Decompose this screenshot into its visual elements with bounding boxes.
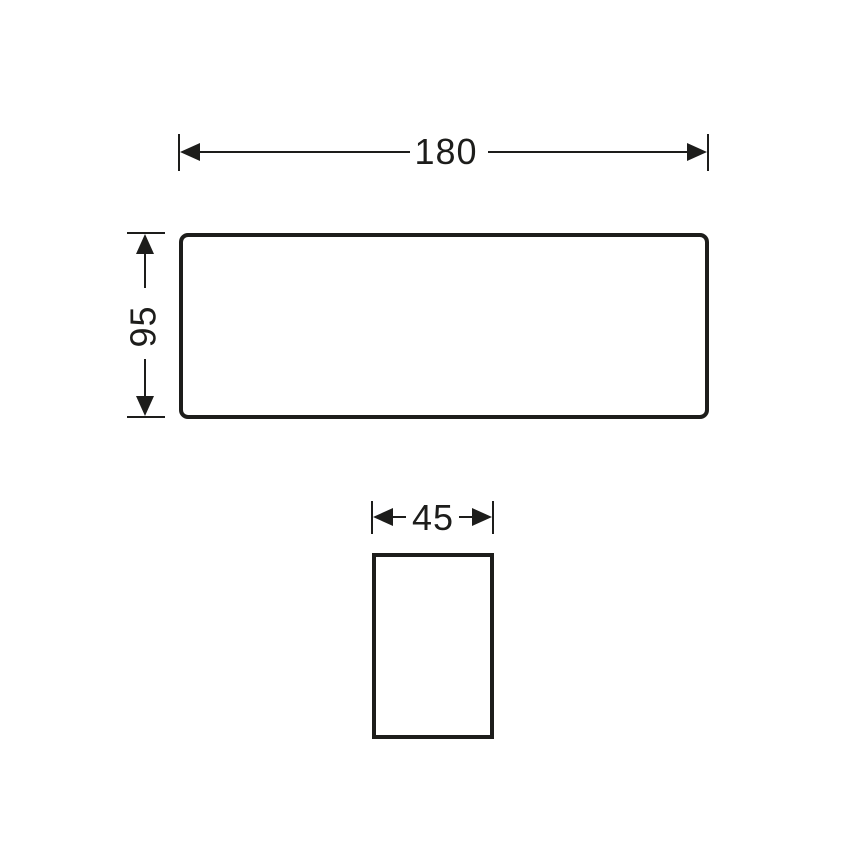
side-view-outline <box>372 553 494 739</box>
width-extension-line-right <box>707 134 709 171</box>
technical-drawing-canvas: 180 95 45 <box>0 0 868 868</box>
width-dimension-line-right-segment <box>488 151 688 153</box>
depth-extension-line-right <box>492 501 494 534</box>
depth-dimension-label: 45 <box>381 499 485 536</box>
front-view-outline <box>179 233 709 419</box>
arrowhead-left-icon <box>180 143 200 161</box>
arrowhead-down-icon <box>136 396 154 416</box>
width-dimension-line-left-segment <box>199 151 410 153</box>
arrowhead-up-icon <box>136 234 154 254</box>
width-dimension-label: 180 <box>394 133 498 170</box>
height-dimension-label: 95 <box>125 275 162 379</box>
height-extension-line-bottom <box>127 416 165 418</box>
arrowhead-right-icon <box>687 143 707 161</box>
